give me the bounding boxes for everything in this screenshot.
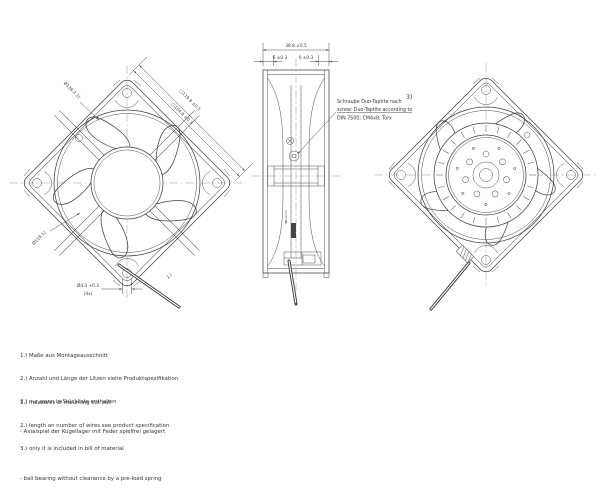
dim-square-outer-label: □119.8 ±0.5 — [178, 88, 202, 112]
screw-note-spec: DIN 7500; CM4x8; Torx — [337, 116, 392, 122]
cutout-top-leader — [80, 102, 99, 120]
duo-taptite-screw — [289, 151, 299, 161]
screw-note: 3) Schraube Duo-Taptite nach screw: Duo-… — [298, 94, 413, 154]
note-en-bearing: - ball bearing without clearance by a pr… — [20, 476, 169, 484]
notes-english: 1.) measures of mounting cut out 2.) len… — [20, 385, 169, 491]
wire-note-ref-label: 2.) — [165, 272, 174, 281]
side-view: 38.8 ±0.5 6 ±0.3 6 ±0.3 3) Schraube Duo-… — [252, 43, 412, 305]
screw-note-leader — [298, 112, 337, 154]
impeller-hub-front — [91, 147, 163, 219]
mount-hole-dimension: Ø4.3 +0.3 (4x) — [77, 279, 142, 297]
rotor-back-plate — [446, 135, 526, 215]
note-en-3: 3.) only it is included in bill of mater… — [20, 446, 169, 454]
lead-wire-side — [289, 261, 298, 305]
dim-cutout-bottom-label: Ø118 1) — [30, 229, 47, 246]
dim-flange-right-label: 6 ±0.3 — [299, 55, 314, 61]
lead-wire-rear — [431, 263, 469, 309]
note-de-2: 2.) Anzahl und Länge der Litzen siehe Pr… — [20, 376, 178, 384]
dim-mount-hole-label: Ø4.3 +0.3 — [77, 282, 99, 289]
screw-note-de: Schraube Duo-Taptite nach — [337, 99, 402, 105]
hub-screws-side — [287, 138, 300, 162]
dim-mount-hole-qty-label: (4x) — [84, 291, 93, 297]
note-de-1: 1.) Maße aus Montageausschnitt — [20, 353, 178, 361]
dim-cutout-top-label: Ø126.2 1) — [62, 80, 82, 100]
connector-block — [291, 223, 296, 238]
screw-note-en: screw: Duo-Taptite according to — [337, 107, 412, 113]
dim-hole-pitch-label: □104.8 ±0.3 — [170, 102, 194, 126]
strut-hole — [76, 135, 83, 142]
cutout-bottom-leader — [50, 213, 80, 231]
screw-note-ref: 3) — [406, 94, 412, 101]
dim-flange-left-label: 6 ±0.3 — [273, 55, 288, 61]
dim-depth-label: 38.8 ±0.5 — [285, 43, 307, 49]
stator-assembly — [434, 123, 538, 227]
flange-pilot-hole — [524, 132, 530, 138]
note-en-1: 1.) measures of mounting cut out — [20, 400, 169, 408]
front-view: □119.8 ±0.5 □104.8 ±0.3 Ø126.2 1) Ø118 1… — [9, 57, 253, 307]
note-en-2: 2.) length an number of wires see produc… — [20, 423, 169, 431]
